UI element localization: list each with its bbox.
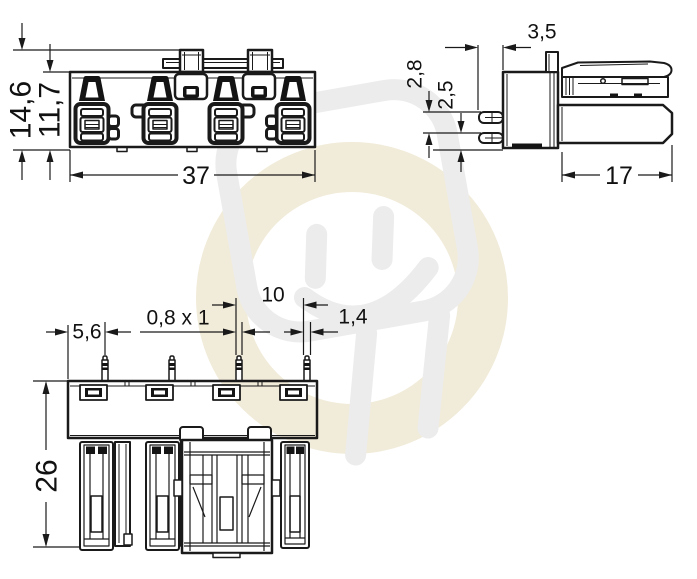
dim-bottom-pin-collar: 1,4: [338, 305, 368, 328]
latch-slot-right: [243, 74, 275, 99]
dim-side-row-spacing: 2,5: [434, 80, 457, 109]
dim-bottom-pin-pitch: 10: [261, 283, 284, 306]
side-pins: [479, 112, 503, 143]
dim-side-row-offset: 2,8: [403, 59, 426, 88]
side-lower-section: [558, 105, 672, 143]
side-latch-lever: [562, 62, 672, 98]
dim-front-width: 37: [182, 162, 210, 190]
side-top-tab: [546, 52, 558, 72]
latch-slot-left: [175, 74, 207, 99]
latch-tab-right: [248, 50, 272, 72]
leg-group-4: [281, 442, 309, 548]
dim-bottom-pin-cross-section: 0,8 x 1: [146, 306, 209, 329]
dim-side-pin-length: 3,5: [527, 20, 556, 43]
leg-narrow-1: [115, 442, 132, 546]
connector-dimension-drawing: 14,6 11,7 37: [0, 0, 697, 579]
dim-side-depth: 17: [605, 162, 633, 190]
plug-left-eye-icon: [308, 234, 324, 278]
leg-group-1: [80, 442, 113, 550]
dim-bottom-height: 26: [31, 459, 64, 492]
dim-bottom-edge-to-pin: 5,6: [72, 320, 101, 343]
plug-right-eye-icon: [375, 217, 391, 260]
latch-tab-left: [180, 50, 203, 72]
central-latch-frame: [174, 440, 280, 558]
technical-drawing-page: 14,6 11,7 37: [0, 0, 697, 579]
front-view: 14,6 11,7 37: [5, 23, 316, 190]
dim-front-housing-height: 11,7: [34, 82, 67, 138]
